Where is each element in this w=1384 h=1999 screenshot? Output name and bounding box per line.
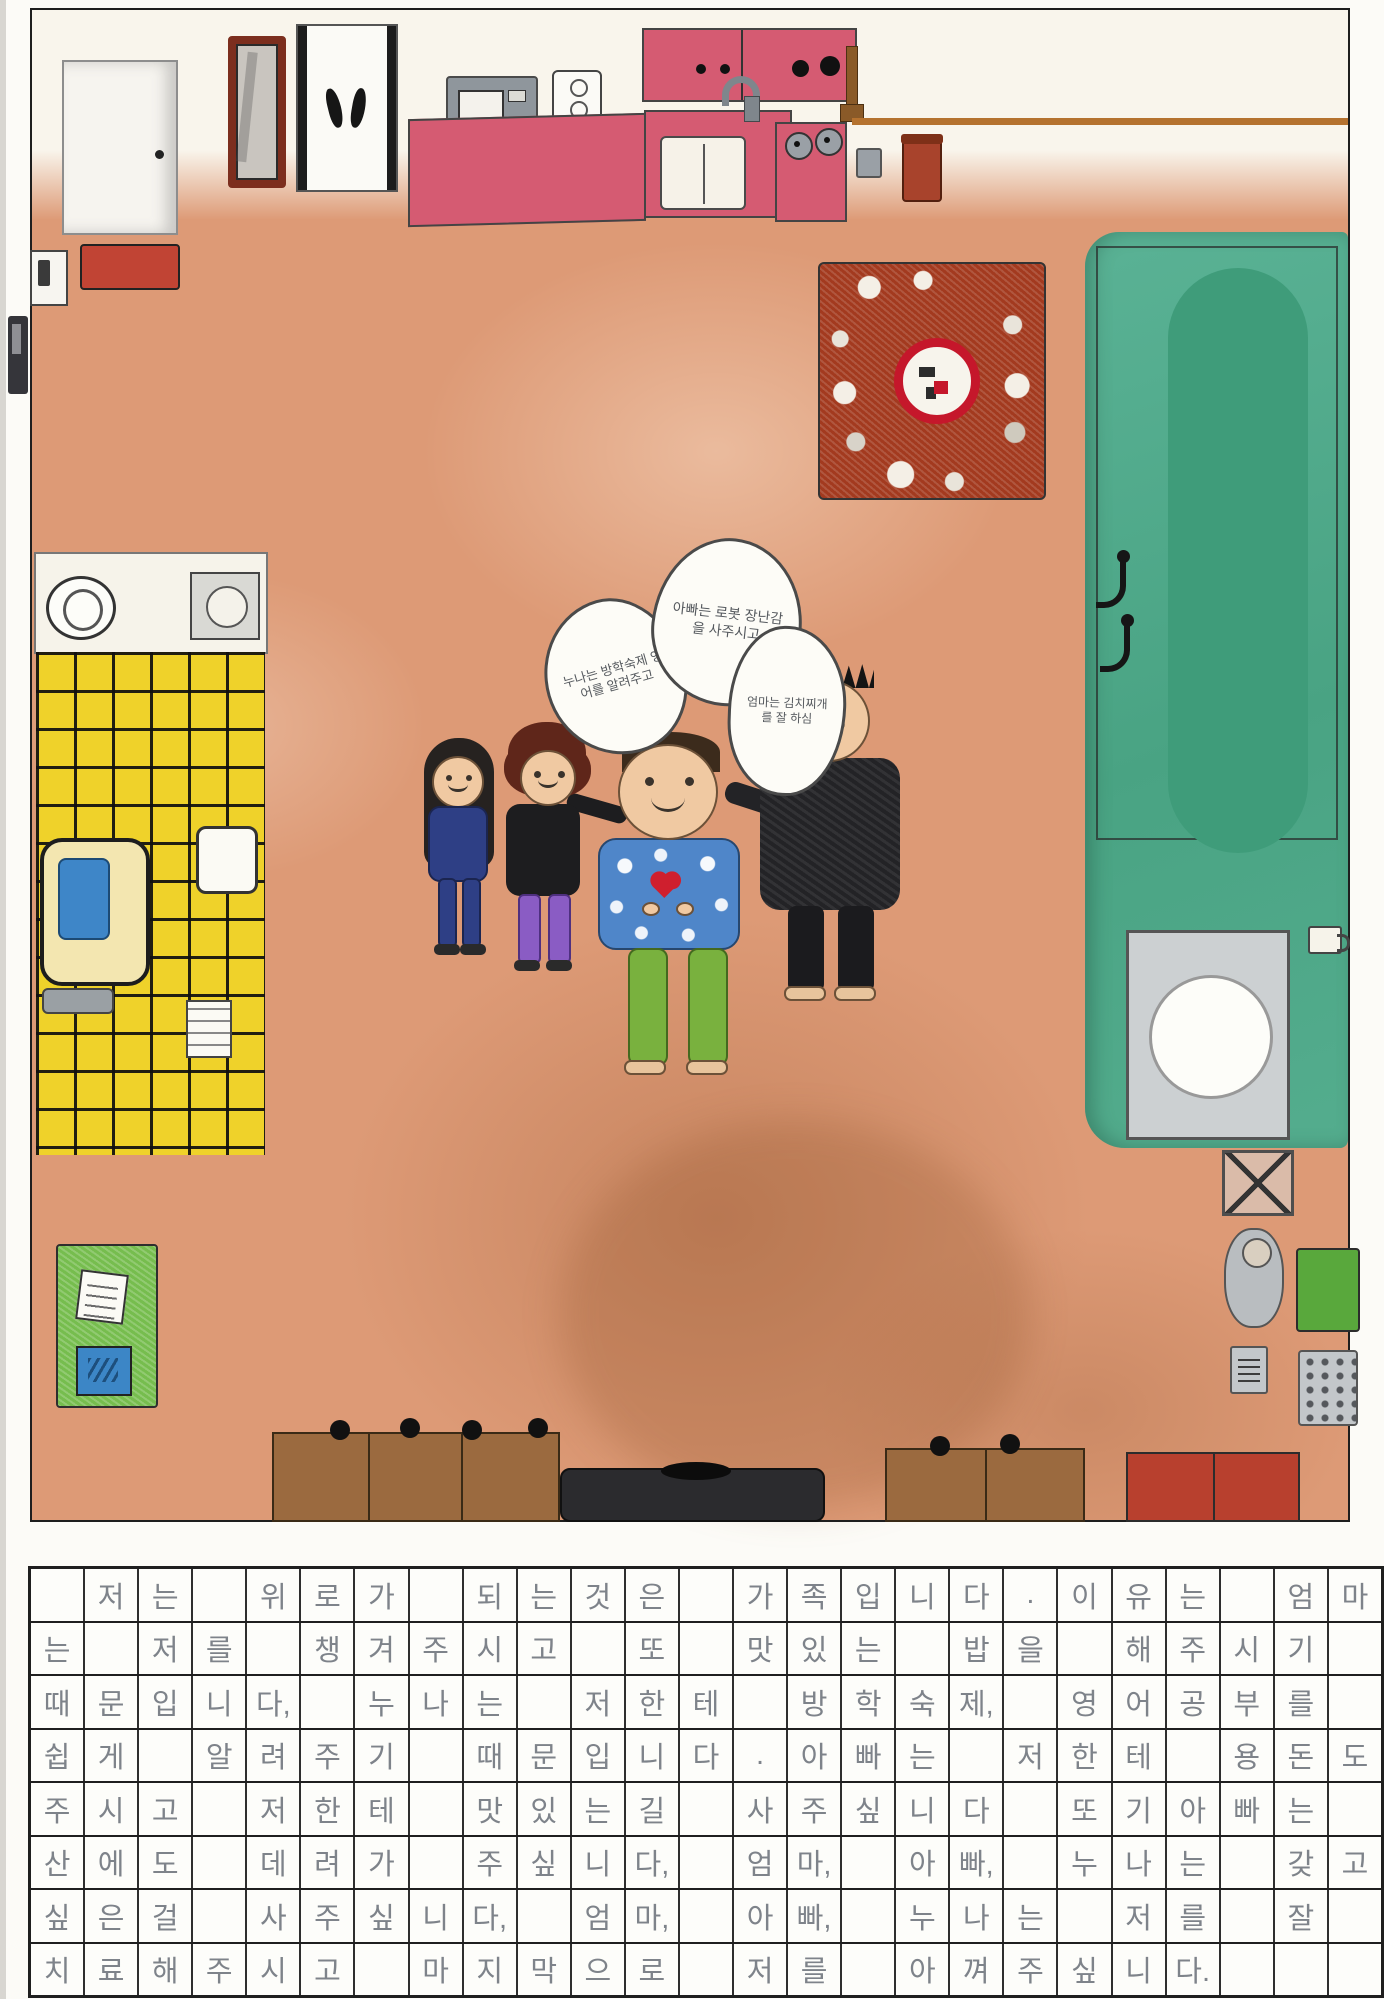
- manuscript-cell: 주: [299, 1730, 353, 1782]
- stool: [1222, 1150, 1294, 1216]
- main-dish: [894, 338, 980, 424]
- manuscript-cell: 입: [570, 1730, 624, 1782]
- manuscript-cell: 가: [353, 1569, 407, 1621]
- manuscript-cell: 주: [31, 1783, 83, 1835]
- manuscript-cell: 알: [191, 1730, 245, 1782]
- manuscript-cell: 저: [245, 1783, 299, 1835]
- manuscript-row: 산에도데려가주싶니다,엄마,아빠,누나는갖고: [31, 1835, 1381, 1889]
- shoe: [514, 960, 540, 971]
- door-mat: [80, 244, 180, 290]
- sister2-head: [520, 750, 576, 806]
- manuscript-cell: [408, 1783, 462, 1835]
- boy-hand: [642, 902, 660, 916]
- manuscript-cell: .: [1002, 1569, 1056, 1621]
- manuscript-cell: 테: [678, 1676, 732, 1728]
- stove-burner: [815, 128, 843, 156]
- cabinet-knob: [330, 1420, 350, 1440]
- manuscript-cell: 테: [1111, 1730, 1165, 1782]
- manuscript-grid: 저는위로가되는것은가족입니다.이유는엄마는저를챙겨주시고또맛있는밥을해주시기때문…: [28, 1566, 1384, 1998]
- manuscript-cell: 싶: [1056, 1944, 1110, 1996]
- manuscript-cell: 는: [31, 1623, 83, 1675]
- manuscript-cell: 숙: [894, 1676, 948, 1728]
- manuscript-cell: [678, 1569, 732, 1621]
- manuscript-cell: 는: [1273, 1783, 1327, 1835]
- manuscript-cell: [570, 1623, 624, 1675]
- manuscript-cell: 입: [137, 1676, 191, 1728]
- manuscript-cell: [245, 1623, 299, 1675]
- sister2-body: [506, 804, 580, 896]
- stove: [775, 122, 847, 222]
- manuscript-cell: [408, 1569, 462, 1621]
- manuscript-cell: 시: [83, 1783, 137, 1835]
- manuscript-cell: 는: [840, 1623, 894, 1675]
- manuscript-row: 때문입니다,누나는저한테방학숙제,영어공부를: [31, 1674, 1381, 1728]
- grab-bar: [42, 988, 114, 1014]
- manuscript-cell: 는: [1165, 1569, 1219, 1621]
- towel-roll: [186, 1000, 232, 1058]
- manuscript-cell: [31, 1569, 83, 1621]
- manuscript-cell: 마: [408, 1944, 462, 1996]
- manuscript-cell: 테: [353, 1783, 407, 1835]
- manuscript-cell: 니: [624, 1730, 678, 1782]
- cabinet-knob: [1000, 1434, 1020, 1454]
- manuscript-cell: 려: [245, 1730, 299, 1782]
- manuscript-cell: 저: [137, 1623, 191, 1675]
- manuscript-cell: 다: [948, 1783, 1002, 1835]
- manuscript-cell: 누: [1056, 1837, 1110, 1889]
- manuscript-cell: 니: [408, 1890, 462, 1942]
- manuscript-cell: 엄: [732, 1837, 786, 1889]
- manuscript-cell: [191, 1783, 245, 1835]
- manuscript-cell: 아: [786, 1730, 840, 1782]
- manuscript-cell: 유: [1111, 1569, 1165, 1621]
- dishwasher-door: [660, 136, 746, 210]
- manuscript-cell: 저: [1111, 1890, 1165, 1942]
- cabinet-knob: [930, 1436, 950, 1456]
- speech-bubble-mom-text: 엄마는 김치찌개를 잘 하심: [745, 695, 830, 728]
- manuscript-cell: 돈: [1273, 1730, 1327, 1782]
- manuscript-cell: [678, 1944, 732, 1996]
- manuscript-row: 쉽게알려주기때문입니다.아빠는저한테용돈도: [31, 1728, 1381, 1782]
- manuscript-cell: 시: [1219, 1623, 1273, 1675]
- manuscript-cell: 니: [191, 1676, 245, 1728]
- manuscript-cell: 제,: [948, 1676, 1002, 1728]
- remote-control: [1298, 1350, 1358, 1426]
- manuscript-cell: [516, 1676, 570, 1728]
- small-appliance: [1230, 1346, 1268, 1394]
- boy-head: [618, 744, 718, 840]
- manuscript-cell: 를: [191, 1623, 245, 1675]
- manuscript-cell: 게: [83, 1730, 137, 1782]
- manuscript-cell: [1327, 1890, 1381, 1942]
- manuscript-cell: 되: [462, 1569, 516, 1621]
- wardrobe-handle: [349, 87, 369, 129]
- kitchen-counter: [408, 113, 646, 227]
- bath-water: [58, 858, 110, 940]
- manuscript-cell: 사: [245, 1890, 299, 1942]
- manuscript-cell: [137, 1730, 191, 1782]
- sister1-leg: [462, 878, 481, 948]
- cabinet-knob: [400, 1418, 420, 1438]
- manuscript-cell: 는: [570, 1783, 624, 1835]
- manuscript-cell: 밥: [948, 1623, 1002, 1675]
- manuscript-cell: 문: [516, 1730, 570, 1782]
- manuscript-cell: [408, 1837, 462, 1889]
- manuscript-cell: 해: [137, 1944, 191, 1996]
- manuscript-cell: 다,: [245, 1676, 299, 1728]
- manuscript-cell: 겨: [353, 1623, 407, 1675]
- wardrobe-handle: [323, 87, 345, 129]
- dad-leg: [788, 906, 824, 992]
- manuscript-cell: 를: [786, 1944, 840, 1996]
- wardrobe-doors: [296, 24, 398, 192]
- manuscript-cell: [516, 1890, 570, 1942]
- manuscript-row: 는저를챙겨주시고또맛있는밥을해주시기: [31, 1621, 1381, 1675]
- cup: [856, 148, 882, 178]
- manuscript-cell: 때: [462, 1730, 516, 1782]
- manuscript-cell: 치: [31, 1944, 83, 1996]
- manuscript-cell: 산: [31, 1837, 83, 1889]
- manuscript-cell: 공: [1165, 1676, 1219, 1728]
- manuscript-cell: [840, 1944, 894, 1996]
- stove-burner: [785, 132, 813, 160]
- manuscript-cell: 걸: [137, 1890, 191, 1942]
- manuscript-cell: 해: [1111, 1623, 1165, 1675]
- cabinet-knob: [696, 64, 706, 74]
- manuscript-cell: [1327, 1623, 1381, 1675]
- manuscript-cell: 는: [516, 1569, 570, 1621]
- manuscript-cell: 껴: [948, 1944, 1002, 1996]
- manuscript-cell: 방: [786, 1676, 840, 1728]
- manuscript-cell: 저: [570, 1676, 624, 1728]
- wash-basin: [196, 826, 258, 894]
- manuscript-cell: [678, 1890, 732, 1942]
- manuscript-cell: 을: [1002, 1623, 1056, 1675]
- manuscript-cell: 다: [678, 1730, 732, 1782]
- manuscript-cell: 도: [1327, 1730, 1381, 1782]
- manuscript-cell: [1002, 1783, 1056, 1835]
- manuscript-cell: 엄: [570, 1890, 624, 1942]
- manuscript-cell: [83, 1623, 137, 1675]
- foot: [686, 1060, 728, 1075]
- manuscript-cell: 를: [1273, 1676, 1327, 1728]
- manuscript-cell: [191, 1837, 245, 1889]
- shoe: [546, 960, 572, 971]
- manuscript-cell: 때: [31, 1676, 83, 1728]
- manuscript-cell: 쉽: [31, 1730, 83, 1782]
- manuscript-cell: [191, 1890, 245, 1942]
- manuscript-cell: [840, 1890, 894, 1942]
- margin-mark: [8, 316, 28, 394]
- manuscript-cell: 지: [462, 1944, 516, 1996]
- manuscript-cell: 주: [1002, 1944, 1056, 1996]
- manuscript-cell: 갖: [1273, 1837, 1327, 1889]
- manuscript-cell: 저: [1002, 1730, 1056, 1782]
- manuscript-cell: 어: [1111, 1676, 1165, 1728]
- blue-screen: [76, 1346, 132, 1396]
- manuscript-cell: 료: [83, 1944, 137, 1996]
- boy-hand: [676, 902, 694, 916]
- manuscript-cell: 나: [1111, 1837, 1165, 1889]
- manuscript-cell: 가: [353, 1837, 407, 1889]
- manuscript-cell: 영: [1056, 1676, 1110, 1728]
- small-figure: [1224, 1228, 1284, 1328]
- cabinet-knob: [462, 1420, 482, 1440]
- manuscript-cell: 데: [245, 1837, 299, 1889]
- manuscript-cell: 주: [786, 1783, 840, 1835]
- manuscript-cell: [678, 1783, 732, 1835]
- manuscript-cell: 를: [1165, 1890, 1219, 1942]
- cabinet-knob: [528, 1418, 548, 1438]
- manuscript-cell: 는: [1002, 1890, 1056, 1942]
- manuscript-cell: 학: [840, 1676, 894, 1728]
- foot: [784, 986, 826, 1001]
- manuscript-cell: 맛: [732, 1623, 786, 1675]
- manuscript-cell: 또: [624, 1623, 678, 1675]
- manuscript-cell: 기: [1273, 1623, 1327, 1675]
- manuscript-cell: [1273, 1944, 1327, 1996]
- manuscript-cell: 주: [299, 1890, 353, 1942]
- manuscript-cell: 용: [1219, 1730, 1273, 1782]
- manuscript-cell: 한: [1056, 1730, 1110, 1782]
- manuscript-cell: [1219, 1944, 1273, 1996]
- manuscript-cell: 빠,: [786, 1890, 840, 1942]
- manuscript-cell: 은: [83, 1890, 137, 1942]
- manuscript-cell: 족: [786, 1569, 840, 1621]
- manuscript-cell: 나: [408, 1676, 462, 1728]
- sideboard-right: [885, 1448, 1085, 1522]
- manuscript-cell: [894, 1623, 948, 1675]
- manuscript-cell: 고: [516, 1623, 570, 1675]
- mirror: [228, 36, 286, 188]
- manuscript-cell: 싶: [840, 1783, 894, 1835]
- manuscript-cell: [948, 1730, 1002, 1782]
- manuscript-cell: 주: [1165, 1623, 1219, 1675]
- small-mat: [1296, 1248, 1360, 1332]
- manuscript-cell: [1219, 1569, 1273, 1621]
- manuscript-cell: [1219, 1837, 1273, 1889]
- boy-shirt: [598, 838, 740, 950]
- manuscript-cell: [1056, 1890, 1110, 1942]
- manuscript-cell: 나: [948, 1890, 1002, 1942]
- manuscript-cell: 싶: [353, 1890, 407, 1942]
- manuscript-cell: 는: [1165, 1837, 1219, 1889]
- manuscript-cell: [353, 1944, 407, 1996]
- bed: [1168, 268, 1308, 853]
- cabinet-knob: [820, 56, 840, 76]
- manuscript-cell: 도: [137, 1837, 191, 1889]
- manuscript-cell: 빠,: [948, 1837, 1002, 1889]
- shoe: [434, 944, 460, 955]
- manuscript-cell: 다,: [462, 1890, 516, 1942]
- manuscript-cell: 누: [353, 1676, 407, 1728]
- manuscript-cell: 문: [83, 1676, 137, 1728]
- manuscript-cell: [840, 1837, 894, 1889]
- manuscript-cell: 주: [462, 1837, 516, 1889]
- manuscript-cell: 가: [732, 1569, 786, 1621]
- manuscript-cell: [1002, 1676, 1056, 1728]
- manuscript-cell: 아: [894, 1944, 948, 1996]
- manuscript-cell: 기: [353, 1730, 407, 1782]
- manuscript-cell: 저: [732, 1944, 786, 1996]
- manuscript-cell: 로: [299, 1569, 353, 1621]
- tv: [560, 1468, 825, 1522]
- faucet-base: [744, 96, 760, 122]
- boy-leg: [688, 948, 728, 1066]
- manuscript-cell: [732, 1676, 786, 1728]
- wall-pipe: [852, 118, 1348, 125]
- manuscript-cell: 누: [894, 1890, 948, 1942]
- manuscript-cell: [1165, 1730, 1219, 1782]
- manuscript-cell: 빠: [1219, 1783, 1273, 1835]
- manuscript-cell: 니: [1111, 1944, 1165, 1996]
- manuscript-cell: 싶: [516, 1837, 570, 1889]
- sister1-leg: [438, 878, 457, 948]
- manuscript-cell: 입: [840, 1569, 894, 1621]
- toilet: [46, 576, 116, 640]
- manuscript-cell: [1327, 1676, 1381, 1728]
- manuscript-row: 치료해주시고마지막으로저를아껴주싶니다.: [31, 1942, 1381, 1996]
- manuscript-cell: 부: [1219, 1676, 1273, 1728]
- manuscript-row: 주시고저한테맛있는길사주싶니다또기아빠는: [31, 1781, 1381, 1835]
- manuscript-cell: [678, 1623, 732, 1675]
- shoe: [460, 944, 486, 955]
- mug: [1308, 926, 1342, 954]
- boy-leg: [628, 948, 668, 1066]
- manuscript-cell: [1327, 1944, 1381, 1996]
- sister2-leg: [518, 894, 541, 964]
- manuscript-cell: 다,: [624, 1837, 678, 1889]
- manuscript-cell: 잘: [1273, 1890, 1327, 1942]
- manuscript-cell: 위: [245, 1569, 299, 1621]
- manuscript-cell: 마,: [786, 1837, 840, 1889]
- cabinet-knob: [720, 64, 730, 74]
- dad-leg: [838, 906, 874, 992]
- manuscript-cell: 다.: [1165, 1944, 1219, 1996]
- manuscript-cell: 또: [1056, 1783, 1110, 1835]
- manuscript-row: 싶은걸사주싶니다,엄마,아빠,누나는저를잘: [31, 1888, 1381, 1942]
- manuscript-cell: 아: [732, 1890, 786, 1942]
- manuscript-cell: 맛: [462, 1783, 516, 1835]
- manuscript-cell: 시: [462, 1623, 516, 1675]
- foot: [624, 1060, 666, 1075]
- cabinet-knob: [792, 60, 809, 77]
- intercom-box: [30, 250, 68, 306]
- manuscript-cell: 엄: [1273, 1569, 1327, 1621]
- scanned-drawing-page: 누나는 방학숙제 영어를 알려주고 아빠는 로봇 장난감을 사주시고 엄마는 김…: [0, 0, 1384, 1999]
- manuscript-cell: 니: [894, 1569, 948, 1621]
- manuscript-cell: 로: [624, 1944, 678, 1996]
- manuscript-cell: 한: [299, 1783, 353, 1835]
- manuscript-cell: 니: [894, 1783, 948, 1835]
- foot: [834, 986, 876, 1001]
- speech-bubble-sister-text: 누나는 방학숙제 영어를 알려주고: [560, 647, 671, 707]
- bathroom-sink: [190, 572, 260, 640]
- manuscript-cell: 마,: [624, 1890, 678, 1942]
- manuscript-cell: 다: [948, 1569, 1002, 1621]
- sister1-body: [428, 806, 488, 882]
- manuscript-cell: 마: [1327, 1569, 1381, 1621]
- manuscript-cell: 길: [624, 1783, 678, 1835]
- trash-can: [902, 138, 942, 202]
- manuscript-cell: 주: [408, 1623, 462, 1675]
- manuscript-cell: [1219, 1890, 1273, 1942]
- manuscript-cell: 는: [894, 1730, 948, 1782]
- scan-edge: [0, 0, 6, 1999]
- manuscript-cell: 아: [894, 1837, 948, 1889]
- manuscript-cell: 저: [83, 1569, 137, 1621]
- manuscript-cell: 사: [732, 1783, 786, 1835]
- manuscript-cell: [191, 1569, 245, 1621]
- manuscript-cell: 에: [83, 1837, 137, 1889]
- manuscript-cell: 려: [299, 1837, 353, 1889]
- manuscript-cell: .: [732, 1730, 786, 1782]
- front-door: [62, 60, 178, 235]
- pinned-note: [75, 1269, 129, 1324]
- manuscript-cell: [1002, 1837, 1056, 1889]
- manuscript-cell: [299, 1676, 353, 1728]
- manuscript-cell: 있: [516, 1783, 570, 1835]
- manuscript-cell: 기: [1111, 1783, 1165, 1835]
- manuscript-cell: 한: [624, 1676, 678, 1728]
- washing-machine: [1126, 930, 1290, 1140]
- manuscript-cell: [408, 1730, 462, 1782]
- manuscript-cell: 빠: [840, 1730, 894, 1782]
- manuscript-cell: 고: [299, 1944, 353, 1996]
- manuscript-cell: 이: [1056, 1569, 1110, 1621]
- red-cabinet: [1126, 1452, 1300, 1522]
- manuscript-cell: 시: [245, 1944, 299, 1996]
- manuscript-cell: [1327, 1783, 1381, 1835]
- manuscript-cell: 는: [137, 1569, 191, 1621]
- manuscript-cell: 고: [1327, 1837, 1381, 1889]
- manuscript-row: 저는위로가되는것은가족입니다.이유는엄마: [31, 1569, 1381, 1621]
- sister2-leg: [548, 894, 571, 964]
- manuscript-cell: 니: [570, 1837, 624, 1889]
- manuscript-cell: 챙: [299, 1623, 353, 1675]
- manuscript-cell: [1056, 1623, 1110, 1675]
- manuscript-cell: 아: [1165, 1783, 1219, 1835]
- manuscript-cell: 은: [624, 1569, 678, 1621]
- manuscript-cell: 싶: [31, 1890, 83, 1942]
- manuscript-cell: 주: [191, 1944, 245, 1996]
- manuscript-cell: 것: [570, 1569, 624, 1621]
- manuscript-cell: 으: [570, 1944, 624, 1996]
- manuscript-cell: 있: [786, 1623, 840, 1675]
- sideboard-left: [272, 1432, 560, 1522]
- manuscript-cell: 막: [516, 1944, 570, 1996]
- manuscript-cell: 는: [462, 1676, 516, 1728]
- sister1-head: [432, 756, 484, 808]
- manuscript-cell: 고: [137, 1783, 191, 1835]
- manuscript-cell: [678, 1837, 732, 1889]
